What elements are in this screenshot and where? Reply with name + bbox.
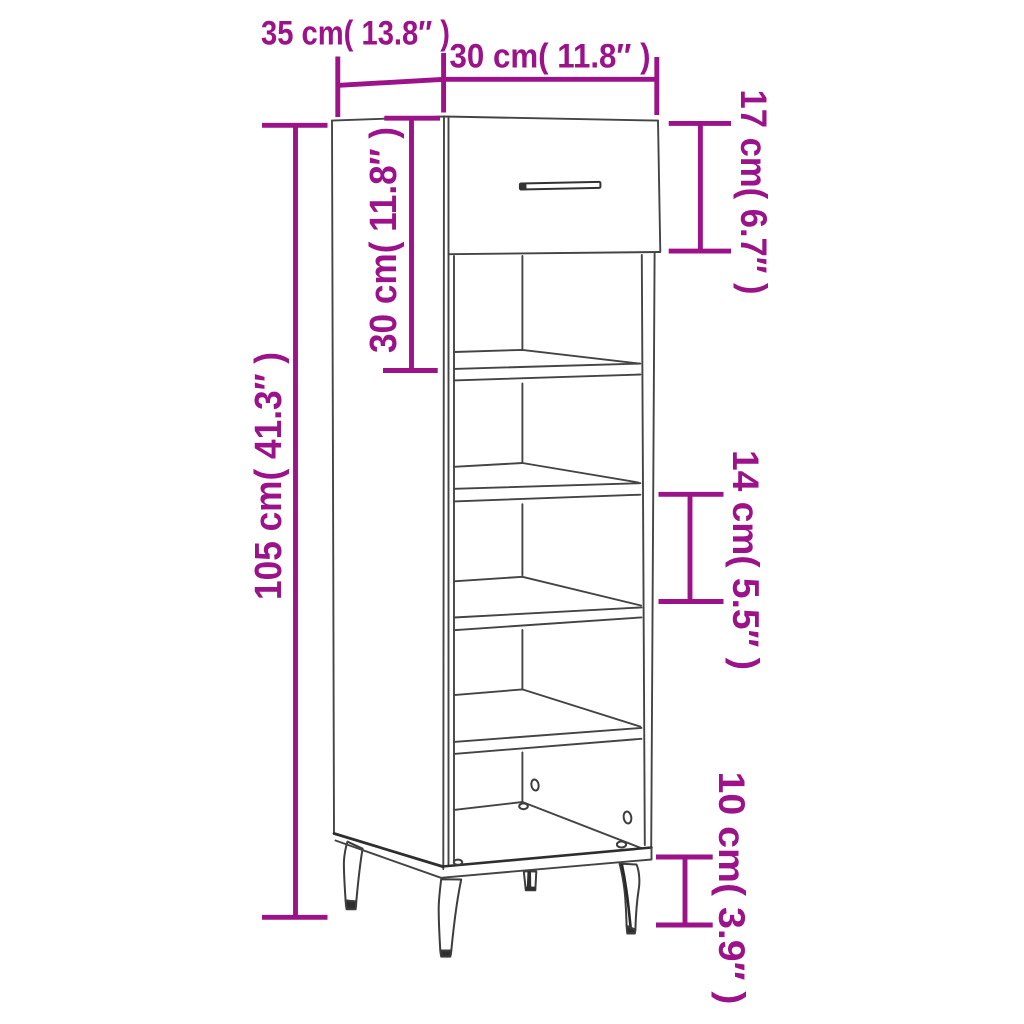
- svg-text:105 cm( 41.3″ ): 105 cm( 41.3″ ): [248, 352, 290, 600]
- svg-text:14 cm( 5.5″ ): 14 cm( 5.5″ ): [725, 450, 766, 670]
- svg-text:10 cm( 3.9″ ): 10 cm( 3.9″ ): [711, 772, 752, 1005]
- svg-text:30 cm( 11.8″ ): 30 cm( 11.8″ ): [363, 127, 405, 353]
- svg-text:17 cm( 6.7″ ): 17 cm( 6.7″ ): [733, 90, 774, 295]
- svg-text:30 cm( 11.8″ ): 30 cm( 11.8″ ): [450, 38, 651, 76]
- svg-text:35 cm( 13.8″ ): 35 cm( 13.8″ ): [261, 15, 450, 53]
